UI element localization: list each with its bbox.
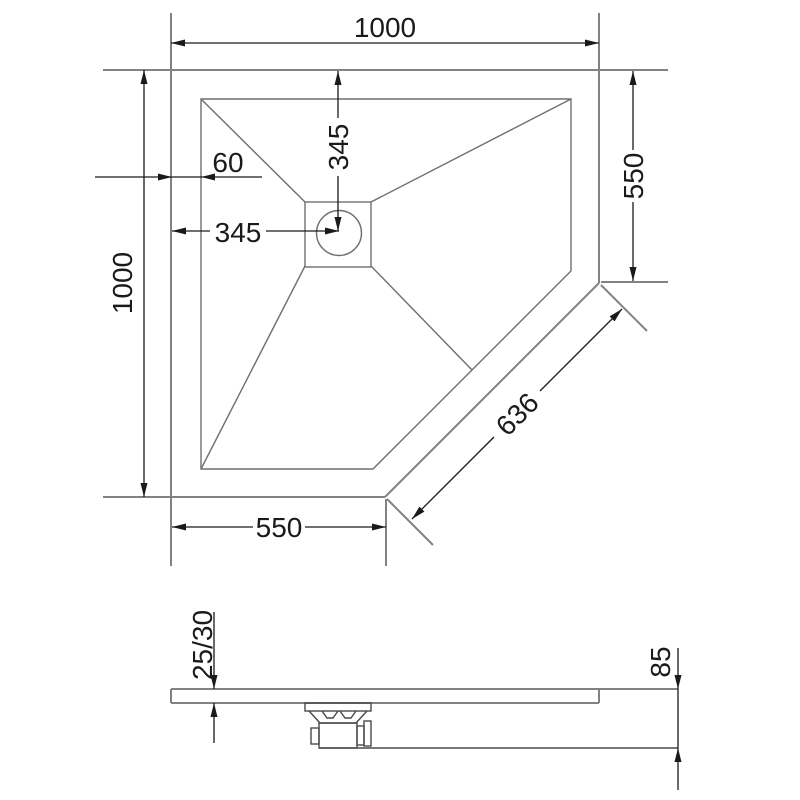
arrow-left-icon: [172, 524, 186, 531]
tray-diagonal-edge: [385, 283, 599, 497]
arrow-up-icon: [211, 703, 218, 717]
slope-fold-line-top-right: [371, 99, 571, 202]
dim-overall-depth-label: 1000: [107, 252, 138, 314]
arrow-up-icon: [630, 71, 637, 85]
arrow-left-icon: [172, 228, 186, 235]
tray-outer-outline: [103, 13, 668, 566]
dim-bottom-side: 550: [172, 512, 386, 543]
dim-drain-from-left: 345: [172, 217, 339, 248]
dim-right-side: 550: [618, 71, 649, 281]
dim-overall-width: 1000: [171, 12, 599, 47]
diagonal-extension-line-lower: [387, 499, 433, 545]
drain-trap-slot-right: [340, 711, 356, 718]
dim-drain-from-top: 345: [323, 71, 354, 231]
dim-diagonal-label: 636: [490, 387, 545, 442]
dim-overall-width-label: 1000: [354, 12, 416, 43]
arrow-up-icon: [141, 70, 148, 84]
technical-drawing-page: 1000 1000 60 345: [0, 0, 800, 800]
arrow-up-icon: [675, 748, 682, 762]
dim-bottom-side-label: 550: [256, 512, 303, 543]
dim-overall-height: 85: [645, 646, 682, 790]
dim-line: [412, 437, 494, 519]
tray-profile: [171, 689, 678, 703]
arrow-left-icon: [171, 40, 185, 47]
dim-edge-thickness: 25/30: [187, 610, 218, 743]
dim-right-side-label: 550: [618, 153, 649, 200]
side-view: 25/30 85: [171, 610, 682, 790]
arrow-right-icon: [158, 174, 172, 181]
arrow-right-icon: [585, 40, 599, 47]
dim-drain-from-top-label: 345: [323, 124, 354, 171]
drain-outlet-flange: [364, 721, 371, 746]
arrow-down-icon: [630, 267, 637, 281]
drain-outlet-pipe: [357, 726, 364, 745]
arrow-up-icon: [335, 71, 342, 85]
shower-tray-drawing: 1000 1000 60 345: [0, 0, 800, 800]
arrow-right-icon: [325, 228, 339, 235]
arrow-down-icon: [141, 483, 148, 497]
top-view: 1000 1000 60 345: [95, 12, 668, 566]
drain-trap-flange: [305, 703, 371, 711]
drain-trap-funnel: [309, 711, 367, 723]
slope-fold-line-diagonal: [371, 266, 472, 370]
drain-trap-left-tab: [311, 728, 319, 744]
drain-trap-body: [319, 723, 357, 748]
dim-line: [540, 309, 622, 391]
arrow-right-icon: [372, 524, 386, 531]
diagonal-extension-line-upper: [601, 285, 647, 331]
dim-rim-width-label: 60: [212, 147, 243, 178]
slope-fold-line-bottom-left: [201, 266, 305, 469]
arrow-down-icon: [335, 217, 342, 231]
dim-overall-depth: 1000: [107, 70, 148, 497]
drain-trap: [305, 703, 678, 748]
dim-rim-width: 60: [95, 147, 262, 181]
drain-trap-slot-left: [322, 711, 338, 718]
dim-overall-height-label: 85: [645, 646, 676, 677]
dim-drain-from-left-label: 345: [215, 217, 262, 248]
dim-edge-thickness-label: 25/30: [187, 610, 218, 680]
